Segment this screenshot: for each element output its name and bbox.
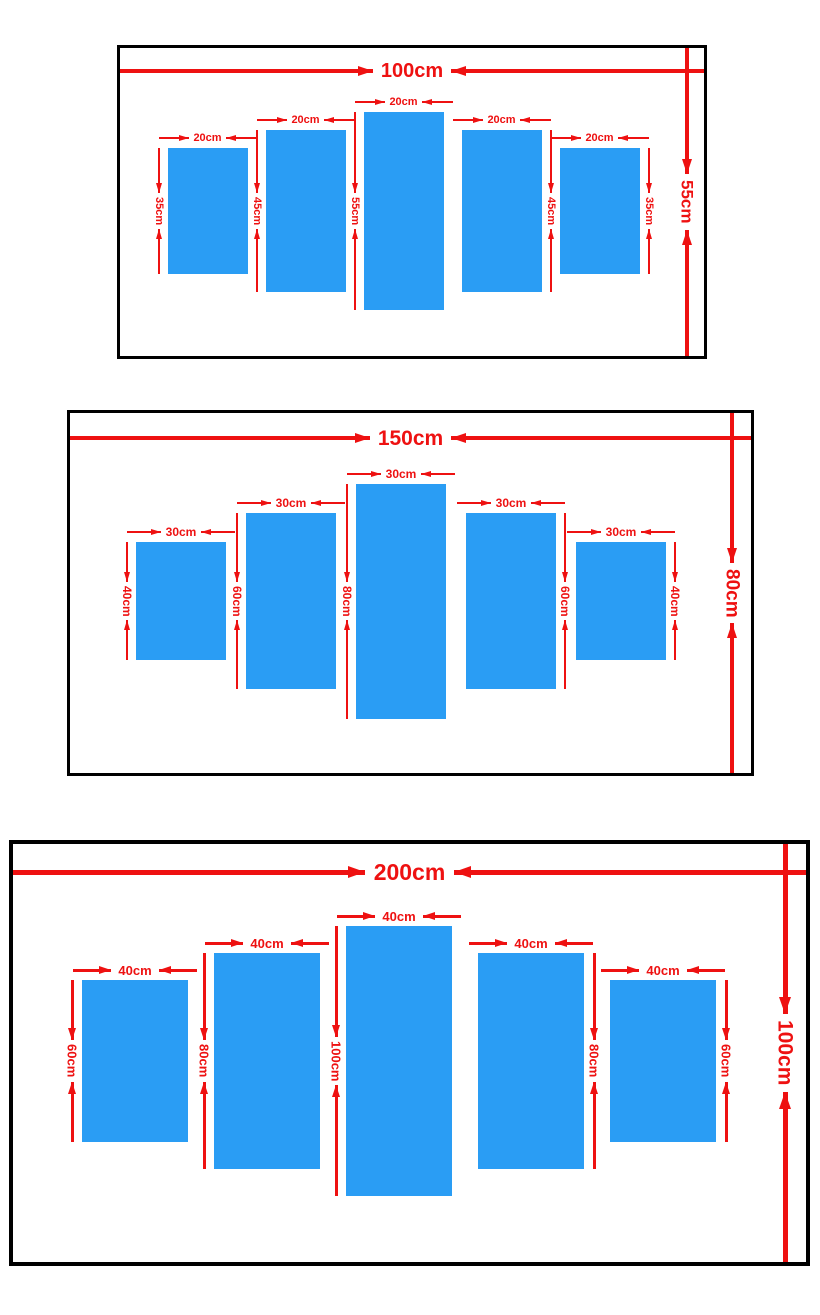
panel-width-dimension: 30cm bbox=[237, 494, 345, 512]
dimension-line bbox=[551, 137, 582, 139]
size-chart-page: { "colors": { "panel_blue": "#2A9DF4", "… bbox=[0, 0, 820, 1315]
panel-width-dimension: 20cm bbox=[551, 130, 649, 147]
panel-height-dimension: 35cm bbox=[150, 148, 167, 274]
arrowhead-up-icon bbox=[68, 1082, 76, 1094]
overall-width-dimension: 150cm bbox=[70, 424, 751, 453]
dimension-line bbox=[158, 229, 160, 274]
canvas-panel bbox=[610, 980, 716, 1142]
panel-width-label: 20cm bbox=[585, 133, 613, 144]
arrowhead-right-icon bbox=[495, 939, 507, 947]
arrowhead-down-icon bbox=[779, 997, 791, 1014]
panel-height-dimension: 60cm bbox=[63, 980, 82, 1142]
dimension-line bbox=[346, 484, 348, 582]
panel-width-dimension: 30cm bbox=[347, 465, 455, 483]
dimension-line bbox=[564, 513, 566, 582]
dimension-line bbox=[451, 436, 751, 440]
arrowhead-right-icon bbox=[151, 529, 161, 535]
panel-width-dimension: 40cm bbox=[469, 934, 593, 953]
arrowhead-right-icon bbox=[179, 135, 189, 141]
dimension-line bbox=[469, 942, 507, 945]
arrowhead-down-icon bbox=[590, 1028, 598, 1040]
arrowhead-left-icon bbox=[687, 966, 699, 974]
dimension-line bbox=[451, 69, 704, 73]
arrowhead-down-icon bbox=[562, 572, 568, 582]
overall-height-label: 80cm bbox=[723, 569, 742, 618]
dimension-line bbox=[354, 112, 356, 193]
dimension-line bbox=[593, 953, 596, 1040]
arrowhead-down-icon bbox=[352, 183, 358, 193]
panel-height-dimension: 45cm bbox=[542, 130, 559, 292]
dimension-line bbox=[346, 620, 348, 718]
panel-height-label: 80cm bbox=[341, 586, 353, 617]
arrowhead-up-icon bbox=[779, 1092, 791, 1109]
arrowhead-down-icon bbox=[200, 1028, 208, 1040]
dimension-line bbox=[648, 148, 650, 193]
arrowhead-left-icon bbox=[201, 529, 211, 535]
panel-width-label: 30cm bbox=[496, 497, 527, 509]
canvas-panel bbox=[478, 953, 584, 1169]
dimension-line bbox=[674, 542, 676, 582]
dimension-line bbox=[783, 1092, 788, 1262]
dimension-line bbox=[335, 1085, 338, 1196]
dimension-line bbox=[421, 473, 455, 475]
panel-width-label: 30cm bbox=[606, 526, 637, 538]
dimension-line bbox=[354, 229, 356, 310]
arrowhead-up-icon bbox=[562, 620, 568, 630]
dimension-line bbox=[71, 980, 74, 1040]
panel-height-label: 60cm bbox=[559, 586, 571, 617]
arrowhead-up-icon bbox=[682, 230, 692, 245]
panel-height-dimension: 40cm bbox=[666, 542, 684, 660]
panel-height-dimension: 55cm bbox=[346, 112, 363, 310]
dimension-line bbox=[783, 844, 788, 1014]
dimension-line bbox=[685, 48, 689, 174]
panel-width-dimension: 40cm bbox=[601, 961, 725, 980]
dimension-line bbox=[550, 229, 552, 292]
panel-height-dimension: 80cm bbox=[195, 953, 214, 1169]
panel-height-dimension: 100cm bbox=[327, 926, 346, 1196]
dimension-line bbox=[120, 69, 373, 73]
dimension-line bbox=[203, 953, 206, 1040]
arrowhead-left-icon bbox=[451, 433, 466, 443]
dimension-line bbox=[725, 1082, 728, 1142]
panel-height-label: 35cm bbox=[643, 197, 654, 225]
panel-width-label: 20cm bbox=[389, 97, 417, 108]
arrowhead-left-icon bbox=[520, 117, 530, 123]
panel-height-dimension: 60cm bbox=[717, 980, 736, 1142]
dimension-line bbox=[203, 1082, 206, 1169]
dimension-line bbox=[126, 542, 128, 582]
dimension-line bbox=[237, 502, 271, 504]
dimension-line bbox=[641, 531, 675, 533]
dimension-line bbox=[71, 1082, 74, 1142]
arrowhead-down-icon bbox=[68, 1028, 76, 1040]
arrowhead-left-icon bbox=[324, 117, 334, 123]
panel-height-label: 80cm bbox=[588, 1044, 601, 1077]
panel-width-dimension: 20cm bbox=[159, 130, 257, 147]
dimension-line bbox=[73, 969, 111, 972]
dimension-line bbox=[236, 620, 238, 689]
dimension-line bbox=[725, 980, 728, 1040]
panel-height-dimension: 45cm bbox=[248, 130, 265, 292]
dimension-line bbox=[205, 942, 243, 945]
dimension-line bbox=[567, 531, 601, 533]
panel-width-dimension: 40cm bbox=[337, 907, 461, 926]
panel-height-label: 35cm bbox=[153, 197, 164, 225]
arrowhead-down-icon bbox=[344, 572, 350, 582]
panel-height-dimension: 80cm bbox=[338, 484, 356, 719]
arrowhead-down-icon bbox=[124, 572, 130, 582]
panel-width-label: 20cm bbox=[193, 133, 221, 144]
panel-height-dimension: 60cm bbox=[228, 513, 246, 689]
canvas-panel bbox=[266, 130, 346, 292]
dimension-line bbox=[687, 969, 725, 972]
canvas-panel bbox=[246, 513, 336, 689]
overall-width-dimension: 200cm bbox=[13, 857, 806, 888]
dimension-line bbox=[335, 926, 338, 1037]
arrowhead-down-icon bbox=[727, 548, 737, 563]
panel-width-dimension: 20cm bbox=[355, 94, 453, 111]
arrowhead-up-icon bbox=[672, 620, 678, 630]
overall-height-dimension: 80cm bbox=[718, 413, 747, 773]
dimension-line bbox=[127, 531, 161, 533]
dimension-line bbox=[126, 620, 128, 660]
dimension-line bbox=[159, 969, 197, 972]
arrowhead-up-icon bbox=[548, 229, 554, 239]
arrowhead-right-icon bbox=[277, 117, 287, 123]
dimension-line bbox=[423, 915, 461, 918]
dimension-line bbox=[257, 119, 288, 121]
dimension-line bbox=[618, 137, 649, 139]
arrowhead-down-icon bbox=[722, 1028, 730, 1040]
dimension-line bbox=[422, 101, 453, 103]
dimension-line bbox=[730, 413, 734, 563]
dimension-line bbox=[355, 101, 386, 103]
arrowhead-right-icon bbox=[627, 966, 639, 974]
arrowhead-down-icon bbox=[548, 183, 554, 193]
arrowhead-left-icon bbox=[451, 66, 466, 76]
overall-height-label: 100cm bbox=[775, 1020, 796, 1085]
arrowhead-right-icon bbox=[363, 912, 375, 920]
arrowhead-left-icon bbox=[291, 939, 303, 947]
dimension-line bbox=[70, 436, 370, 440]
panel-width-label: 40cm bbox=[118, 964, 151, 977]
dimension-line bbox=[453, 119, 484, 121]
arrowhead-left-icon bbox=[159, 966, 171, 974]
dimension-line bbox=[454, 870, 806, 875]
panel-height-label: 60cm bbox=[66, 1044, 79, 1077]
panel-width-dimension: 40cm bbox=[73, 961, 197, 980]
arrowhead-right-icon bbox=[571, 135, 581, 141]
canvas-panel bbox=[168, 148, 248, 274]
arrowhead-up-icon bbox=[156, 229, 162, 239]
arrowhead-up-icon bbox=[124, 620, 130, 630]
arrowhead-down-icon bbox=[672, 572, 678, 582]
dimension-line bbox=[256, 229, 258, 292]
panel-height-label: 60cm bbox=[720, 1044, 733, 1077]
arrowhead-up-icon bbox=[722, 1082, 730, 1094]
overall-width-dimension: 100cm bbox=[120, 57, 704, 85]
arrowhead-left-icon bbox=[531, 500, 541, 506]
panel-width-dimension: 20cm bbox=[453, 112, 551, 129]
overall-width-label: 200cm bbox=[374, 861, 446, 884]
panel-width-dimension: 20cm bbox=[257, 112, 355, 129]
arrowhead-left-icon bbox=[555, 939, 567, 947]
arrowhead-right-icon bbox=[375, 99, 385, 105]
arrowhead-down-icon bbox=[234, 572, 240, 582]
panel-width-dimension: 30cm bbox=[127, 523, 235, 541]
canvas-panel bbox=[346, 926, 452, 1196]
panel-width-label: 20cm bbox=[291, 115, 319, 126]
dimension-line bbox=[347, 473, 381, 475]
arrowhead-up-icon bbox=[352, 229, 358, 239]
arrowhead-down-icon bbox=[646, 183, 652, 193]
arrowhead-right-icon bbox=[348, 866, 365, 878]
canvas-panel bbox=[364, 112, 444, 310]
dimension-line bbox=[158, 148, 160, 193]
size-diagram-200x100: 200cm100cm40cm60cm40cm80cm40cm100cm40cm8… bbox=[9, 840, 810, 1266]
arrowhead-down-icon bbox=[254, 183, 260, 193]
overall-height-dimension: 55cm bbox=[674, 48, 701, 356]
arrowhead-right-icon bbox=[371, 471, 381, 477]
dimension-line bbox=[291, 942, 329, 945]
dimension-line bbox=[685, 230, 689, 356]
arrowhead-left-icon bbox=[618, 135, 628, 141]
dimension-line bbox=[593, 1082, 596, 1169]
arrowhead-left-icon bbox=[311, 500, 321, 506]
arrowhead-right-icon bbox=[355, 433, 370, 443]
panel-width-dimension: 30cm bbox=[567, 523, 675, 541]
dimension-line bbox=[601, 969, 639, 972]
dimension-line bbox=[730, 623, 734, 773]
dimension-line bbox=[555, 942, 593, 945]
arrowhead-up-icon bbox=[254, 229, 260, 239]
panel-height-label: 45cm bbox=[251, 197, 262, 225]
arrowhead-left-icon bbox=[454, 866, 471, 878]
panel-width-label: 40cm bbox=[646, 964, 679, 977]
canvas-panel bbox=[82, 980, 188, 1142]
panel-height-dimension: 40cm bbox=[118, 542, 136, 660]
panel-height-label: 100cm bbox=[330, 1041, 343, 1081]
arrowhead-right-icon bbox=[231, 939, 243, 947]
panel-height-dimension: 80cm bbox=[585, 953, 604, 1169]
panel-width-label: 30cm bbox=[276, 497, 307, 509]
arrowhead-right-icon bbox=[473, 117, 483, 123]
canvas-panel bbox=[214, 953, 320, 1169]
arrowhead-right-icon bbox=[481, 500, 491, 506]
arrowhead-right-icon bbox=[358, 66, 373, 76]
dimension-line bbox=[674, 620, 676, 660]
size-diagram-100x55: 100cm55cm20cm35cm20cm45cm20cm55cm20cm45c… bbox=[117, 45, 707, 359]
panel-height-label: 55cm bbox=[349, 197, 360, 225]
arrowhead-left-icon bbox=[226, 135, 236, 141]
dimension-line bbox=[13, 870, 365, 875]
arrowhead-up-icon bbox=[200, 1082, 208, 1094]
size-diagram-150x80: 150cm80cm30cm40cm30cm60cm30cm80cm30cm60c… bbox=[67, 410, 754, 776]
canvas-panel bbox=[560, 148, 640, 274]
arrowhead-down-icon bbox=[332, 1025, 340, 1037]
dimension-line bbox=[531, 502, 565, 504]
dimension-line bbox=[520, 119, 551, 121]
arrowhead-right-icon bbox=[261, 500, 271, 506]
arrowhead-up-icon bbox=[646, 229, 652, 239]
canvas-panel bbox=[466, 513, 556, 689]
panel-height-label: 60cm bbox=[231, 586, 243, 617]
arrowhead-left-icon bbox=[421, 471, 431, 477]
dimension-line bbox=[236, 513, 238, 582]
overall-height-label: 55cm bbox=[679, 180, 696, 223]
panel-width-label: 30cm bbox=[166, 526, 197, 538]
arrowhead-up-icon bbox=[332, 1085, 340, 1097]
panel-width-label: 40cm bbox=[382, 910, 415, 923]
dimension-line bbox=[159, 137, 190, 139]
dimension-line bbox=[457, 502, 491, 504]
panel-height-label: 40cm bbox=[121, 586, 133, 617]
panel-width-label: 20cm bbox=[487, 115, 515, 126]
arrowhead-right-icon bbox=[591, 529, 601, 535]
panel-width-label: 40cm bbox=[514, 937, 547, 950]
arrowhead-up-icon bbox=[234, 620, 240, 630]
panel-width-dimension: 40cm bbox=[205, 934, 329, 953]
panel-height-label: 40cm bbox=[669, 586, 681, 617]
dimension-line bbox=[564, 620, 566, 689]
arrowhead-up-icon bbox=[344, 620, 350, 630]
canvas-panel bbox=[576, 542, 666, 660]
arrowhead-left-icon bbox=[423, 912, 435, 920]
panel-width-dimension: 30cm bbox=[457, 494, 565, 512]
panel-height-dimension: 35cm bbox=[640, 148, 657, 274]
panel-height-label: 80cm bbox=[198, 1044, 211, 1077]
arrowhead-down-icon bbox=[156, 183, 162, 193]
arrowhead-down-icon bbox=[682, 159, 692, 174]
arrowhead-up-icon bbox=[727, 623, 737, 638]
canvas-panel bbox=[462, 130, 542, 292]
arrowhead-right-icon bbox=[99, 966, 111, 974]
panel-width-label: 40cm bbox=[250, 937, 283, 950]
panel-width-label: 30cm bbox=[386, 468, 417, 480]
overall-width-label: 150cm bbox=[378, 428, 443, 449]
dimension-line bbox=[337, 915, 375, 918]
panel-height-label: 45cm bbox=[545, 197, 556, 225]
overall-width-label: 100cm bbox=[381, 61, 443, 81]
dimension-line bbox=[256, 130, 258, 193]
arrowhead-up-icon bbox=[590, 1082, 598, 1094]
overall-height-dimension: 100cm bbox=[770, 844, 801, 1262]
canvas-panel bbox=[356, 484, 446, 719]
dimension-line bbox=[648, 229, 650, 274]
arrowhead-left-icon bbox=[422, 99, 432, 105]
canvas-panel bbox=[136, 542, 226, 660]
arrowhead-left-icon bbox=[641, 529, 651, 535]
